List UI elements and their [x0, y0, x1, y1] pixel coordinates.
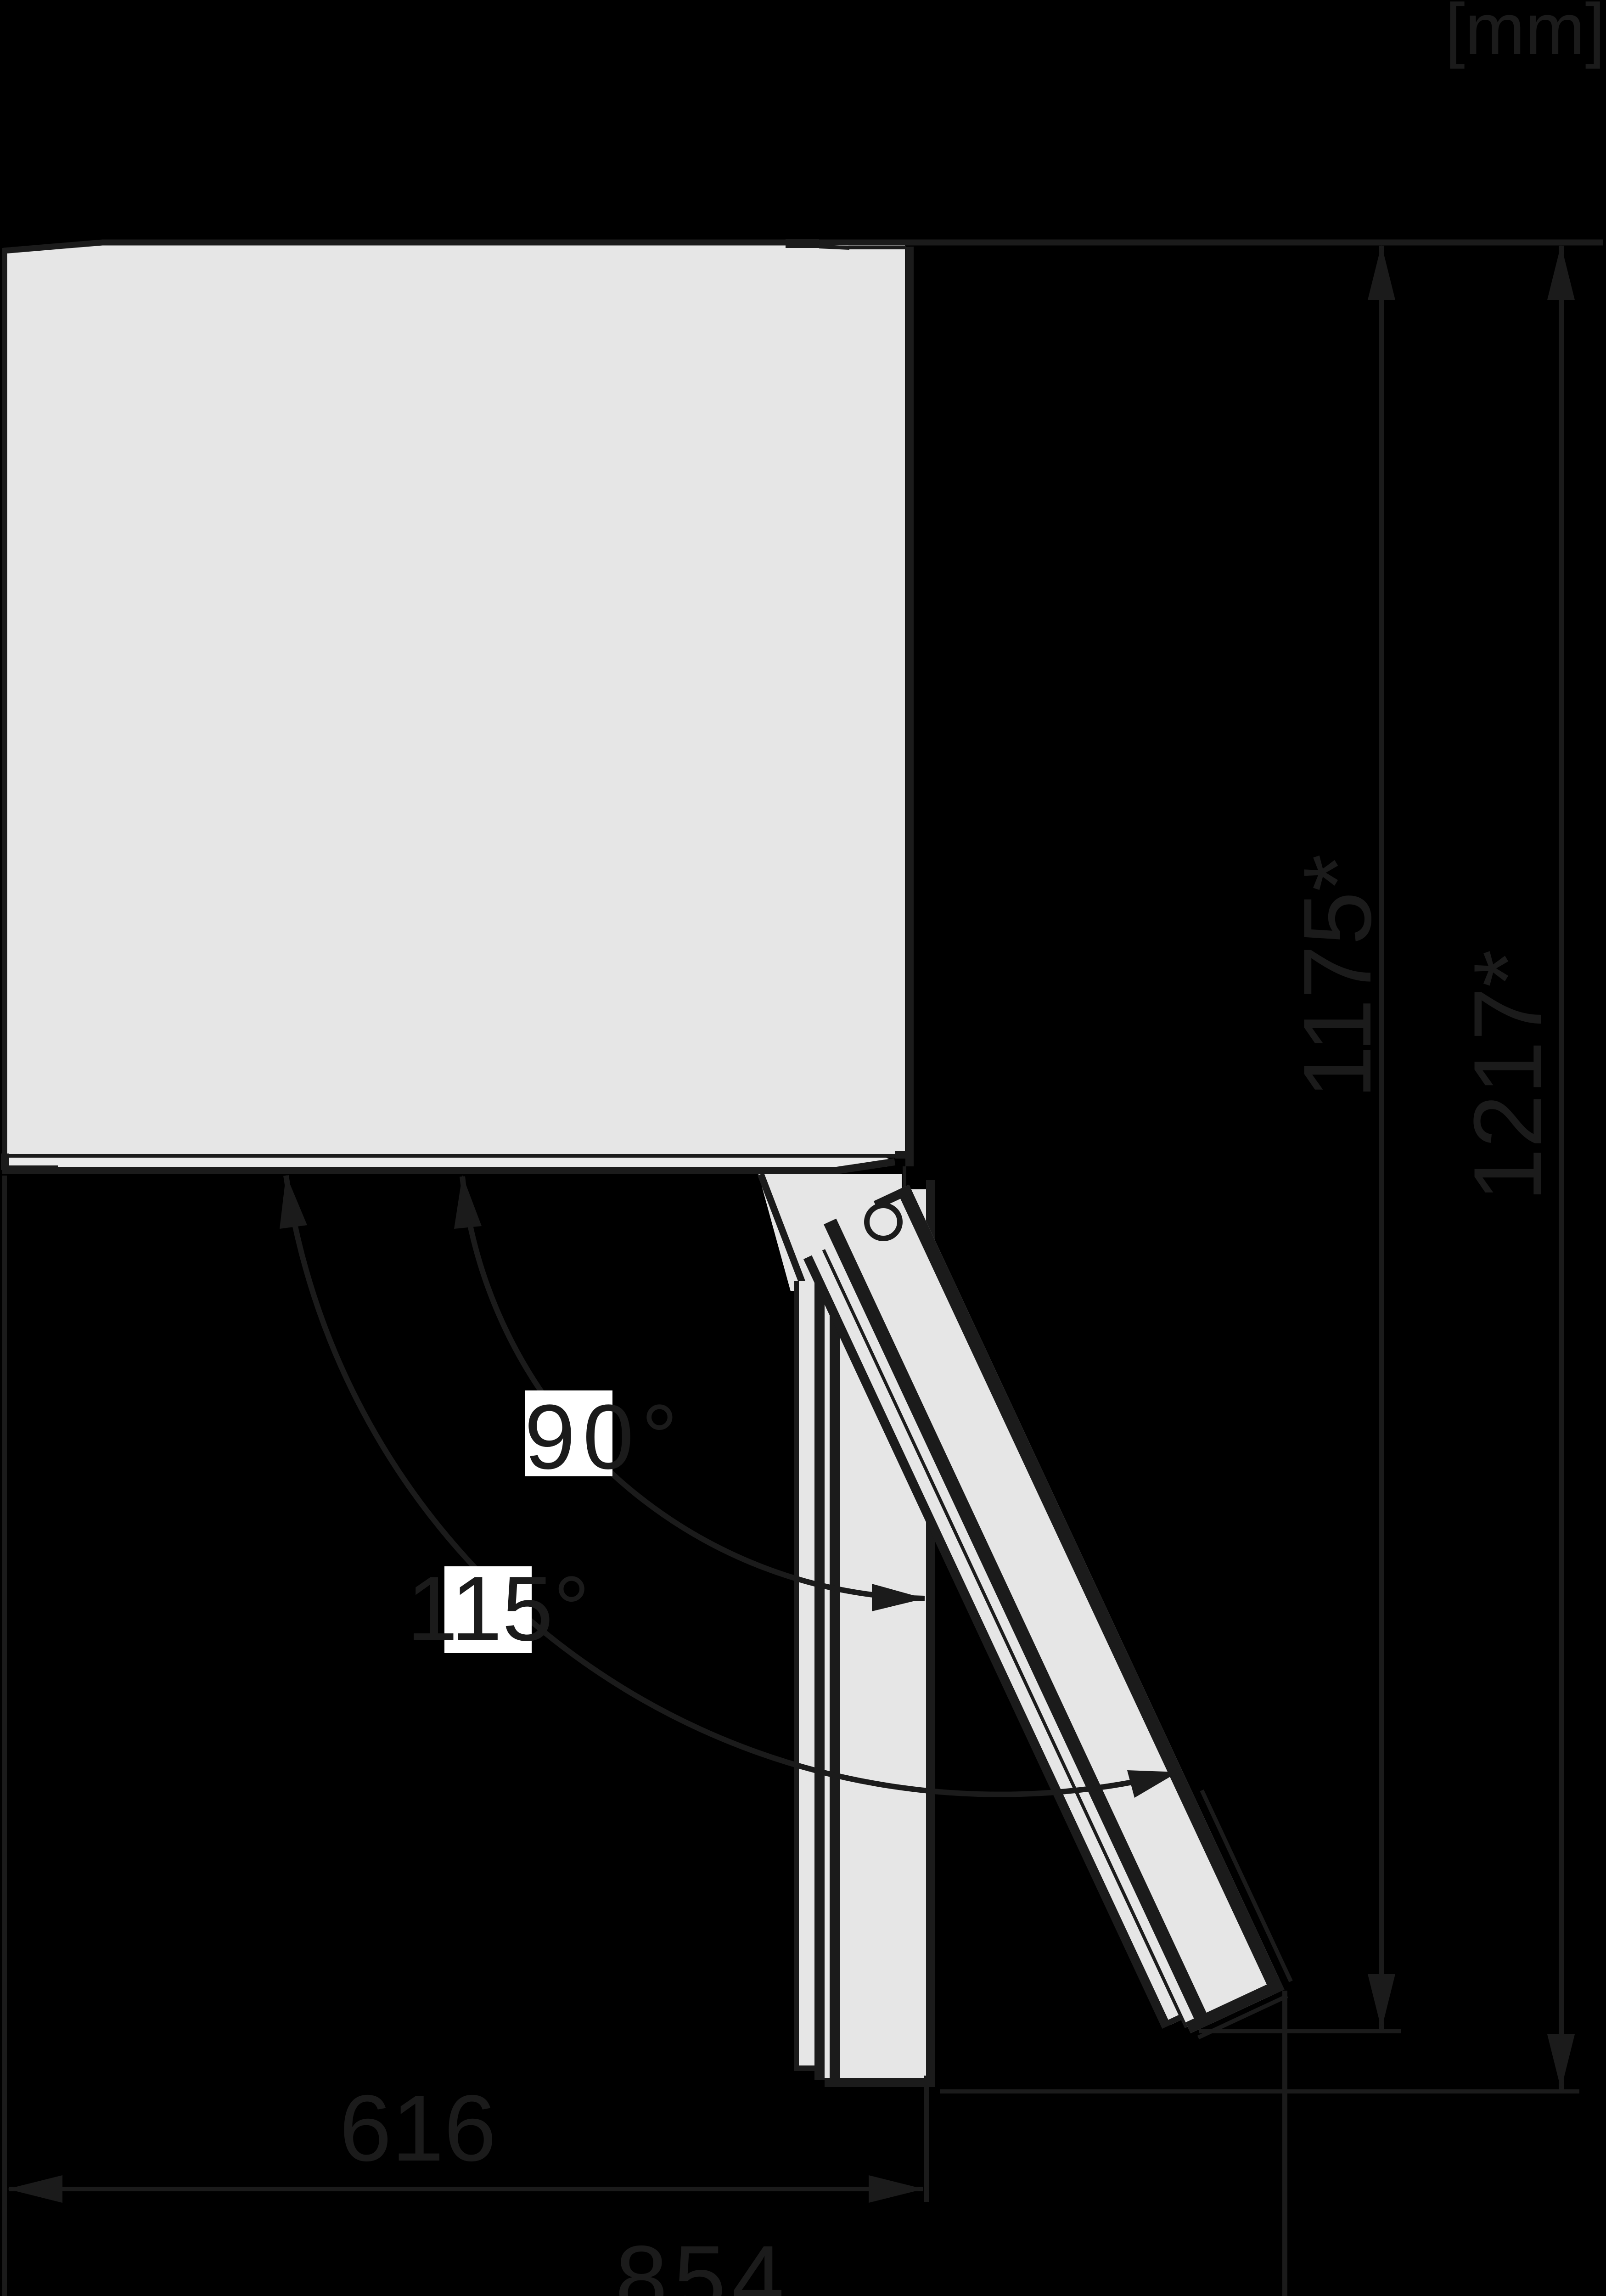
svg-text:90°: 90°: [524, 1386, 685, 1488]
svg-text:854: 854: [615, 2226, 790, 2296]
svg-text:1217*: 1217*: [1454, 950, 1561, 1202]
svg-text:1175*: 1175*: [1283, 854, 1391, 1099]
svg-text:[mm]: [mm]: [1445, 0, 1605, 69]
svg-text:616: 616: [339, 2076, 496, 2181]
svg-text:115°: 115°: [407, 1558, 590, 1660]
